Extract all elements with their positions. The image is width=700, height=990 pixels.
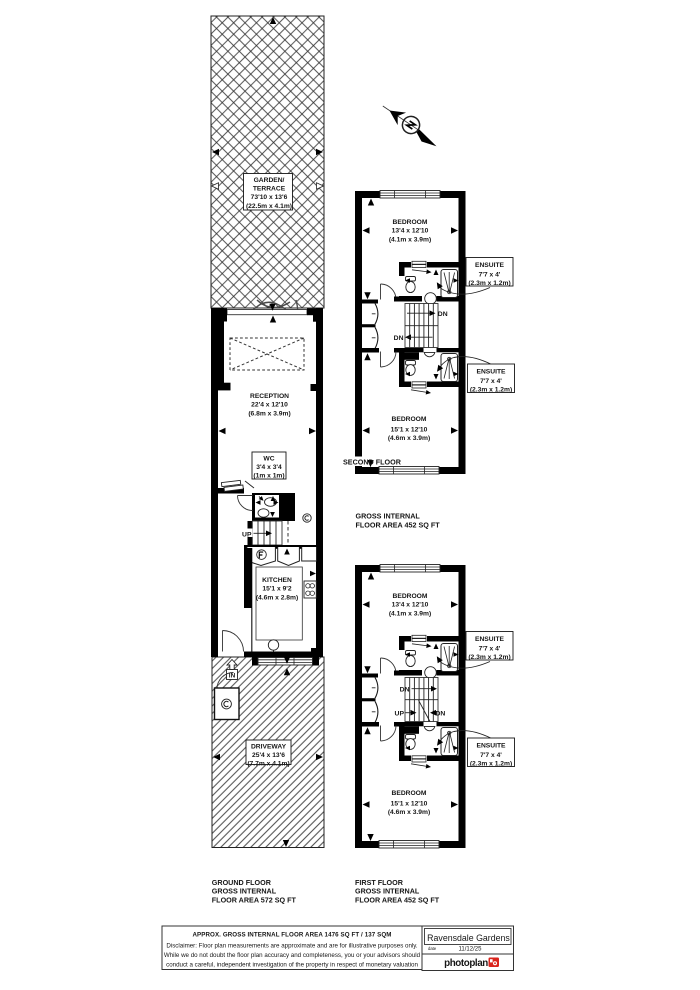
svg-text:(7.7m x 4.1m): (7.7m x 4.1m) — [247, 761, 289, 768]
svg-text:FLOOR AREA 452 SQ FT: FLOOR AREA 452 SQ FT — [356, 520, 441, 529]
svg-text:IN: IN — [229, 673, 236, 680]
svg-text:3'4 x 3'4: 3'4 x 3'4 — [256, 464, 282, 471]
svg-text:25'4 x 13'6: 25'4 x 13'6 — [252, 752, 285, 759]
svg-text:7'7 x 4': 7'7 x 4' — [480, 378, 502, 385]
svg-text:GROSS INTERNAL: GROSS INTERNAL — [355, 887, 420, 896]
svg-text:22'4 x 12'10: 22'4 x 12'10 — [251, 402, 288, 409]
svg-text:RECEPTION: RECEPTION — [250, 393, 289, 400]
svg-text:15'1 x 9'2: 15'1 x 9'2 — [262, 586, 291, 593]
svg-text:11/12/25: 11/12/25 — [459, 947, 483, 953]
svg-text:DRIVEWAY: DRIVEWAY — [251, 744, 287, 751]
svg-text:7'7 x 4': 7'7 x 4' — [479, 272, 501, 279]
svg-text:Disclaimer: Floor plan measure: Disclaimer: Floor plan measurements are … — [166, 943, 418, 950]
svg-text:DN: DN — [400, 687, 410, 694]
svg-text:(2.3m x 1.2m): (2.3m x 1.2m) — [470, 387, 512, 394]
svg-text:FIRST FLOOR: FIRST FLOOR — [355, 878, 404, 887]
svg-text:ENSUITE: ENSUITE — [477, 369, 507, 376]
svg-text:13'4 x 12'10: 13'4 x 12'10 — [392, 228, 429, 235]
svg-text:TERRACE: TERRACE — [253, 186, 286, 193]
svg-text:GROUND FLOOR: GROUND FLOOR — [212, 878, 272, 887]
svg-text:Ravensdale Gardens: Ravensdale Gardens — [427, 933, 510, 943]
svg-text:BEDROOM: BEDROOM — [393, 219, 428, 226]
svg-text:UP: UP — [395, 711, 405, 718]
svg-text:GROSS INTERNAL: GROSS INTERNAL — [212, 887, 277, 896]
svg-text:WC: WC — [263, 456, 274, 463]
svg-text:73'10 x 13'6: 73'10 x 13'6 — [251, 194, 288, 201]
svg-text:FLOOR AREA 452 SQ FT: FLOOR AREA 452 SQ FT — [355, 895, 440, 904]
svg-text:(22.5m x 4.1m): (22.5m x 4.1m) — [246, 203, 292, 210]
svg-text:GROSS INTERNAL: GROSS INTERNAL — [356, 512, 421, 521]
svg-text:photoplan: photoplan — [444, 958, 488, 969]
svg-text:date: date — [428, 946, 437, 951]
svg-text:(6.8m x 3.9m): (6.8m x 3.9m) — [248, 410, 290, 417]
svg-text:BEDROOM: BEDROOM — [392, 416, 427, 423]
svg-text:(4.1m x 3.9m): (4.1m x 3.9m) — [389, 236, 431, 243]
svg-text:While we do not doubt the floo: While we do not doubt the floor plan acc… — [164, 952, 421, 959]
svg-text:SECOND FLOOR: SECOND FLOOR — [343, 458, 402, 467]
svg-text:DN: DN — [394, 335, 404, 342]
svg-text:GARDEN/: GARDEN/ — [254, 177, 285, 184]
svg-text:KITCHEN: KITCHEN — [262, 577, 292, 584]
svg-text:FLOOR AREA 572 SQ FT: FLOOR AREA 572 SQ FT — [212, 895, 297, 904]
svg-text:DN: DN — [436, 711, 446, 718]
svg-text:15'1 x 12'10: 15'1 x 12'10 — [391, 427, 428, 434]
svg-text:(4.6m x 2.8m): (4.6m x 2.8m) — [256, 594, 298, 601]
svg-text:DN: DN — [438, 311, 448, 318]
svg-text:APPROX. GROSS INTERNAL FLOOR A: APPROX. GROSS INTERNAL FLOOR AREA 1476 S… — [192, 932, 391, 939]
svg-text:ENSUITE: ENSUITE — [475, 262, 505, 269]
svg-text:(2.3m x 1.2m): (2.3m x 1.2m) — [468, 280, 510, 287]
svg-text:(4.6m x 3.9m): (4.6m x 3.9m) — [388, 435, 430, 442]
svg-text:conduct a careful, independent: conduct a careful, independent investiga… — [166, 962, 418, 969]
svg-text:UP: UP — [242, 531, 252, 538]
svg-text:(1m x 1m): (1m x 1m) — [253, 473, 284, 480]
